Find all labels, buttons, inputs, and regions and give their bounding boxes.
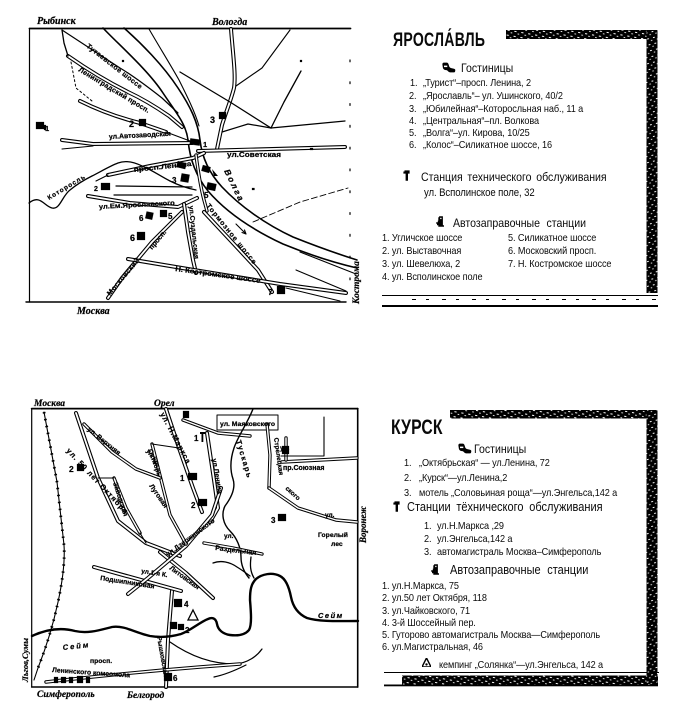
svg-text:1: 1 — [180, 474, 185, 483]
svg-text:Москва: Москва — [33, 399, 65, 409]
svg-text:Тускарь: Тускарь — [234, 439, 254, 480]
svg-text:Ленинградский просп.: Ленинградский просп. — [77, 66, 151, 115]
svg-text:ул.Дзержинского: ул.Дзержинского — [165, 517, 216, 558]
svg-text:3: 3 — [172, 176, 177, 185]
svg-text:ул.Советская: ул.Советская — [227, 152, 281, 159]
svg-text:Московский: Московский — [105, 256, 141, 297]
svg-text:3: 3 — [271, 516, 276, 525]
svg-text:5: 5 — [204, 191, 209, 200]
svg-text:просп.: просп. — [90, 658, 112, 665]
svg-text:ул.: ул. — [325, 512, 335, 519]
svg-text:Сейм: Сейм — [62, 640, 91, 652]
svg-text:ул. Маяковского: ул. Маяковского — [220, 421, 275, 428]
svg-text:3: 3 — [210, 115, 215, 125]
svg-text:ул. Н.Маркса: ул. Н.Маркса — [158, 411, 193, 466]
svg-text:1: 1 — [203, 140, 207, 149]
svg-text:2: 2 — [129, 119, 134, 129]
svg-text:Кострома: Кострома — [352, 261, 362, 305]
svg-text:6: 6 — [130, 233, 135, 243]
svg-text:Белгород: Белгород — [126, 690, 165, 701]
svg-text:6: 6 — [139, 214, 144, 223]
svg-text:Орел: Орел — [154, 399, 175, 409]
svg-text:Раздельная: Раздельная — [215, 545, 257, 557]
svg-text:7: 7 — [268, 287, 273, 297]
svg-text:Горелый: Горелый — [318, 531, 348, 539]
svg-text:Н. Костромское шоссе: Н. Костромское шоссе — [175, 266, 261, 285]
svg-text:лес: лес — [331, 541, 343, 548]
svg-text:Которосль: Которосль — [46, 173, 87, 201]
svg-text:4: 4 — [184, 600, 189, 609]
svg-text:ул.: ул. — [224, 533, 234, 540]
svg-text:2: 2 — [185, 626, 190, 635]
svg-text:2: 2 — [191, 501, 196, 510]
svg-text:2: 2 — [69, 464, 74, 474]
svg-text:Льгов,Сумы: Льгов,Сумы — [20, 638, 30, 683]
svg-text:Вологда: Вологда — [211, 17, 247, 28]
svg-text:ул.1-я К.: ул.1-я К. — [141, 568, 169, 579]
svg-text:Симферополь: Симферополь — [37, 689, 95, 700]
svg-text:Москва: Москва — [76, 306, 110, 317]
svg-text:Рыбинск: Рыбинск — [37, 16, 77, 27]
svg-text:1: 1 — [194, 434, 199, 443]
svg-text:6: 6 — [173, 674, 178, 683]
svg-text:5: 5 — [168, 212, 173, 221]
svg-text:Сейм: Сейм — [318, 611, 344, 620]
svg-text:пр.Союзная: пр.Союзная — [283, 465, 324, 472]
svg-text:ул.Автозаводская: ул.Автозаводская — [109, 131, 171, 141]
svg-text:Воронеж: Воронеж — [358, 506, 368, 544]
svg-text:2: 2 — [94, 186, 98, 193]
